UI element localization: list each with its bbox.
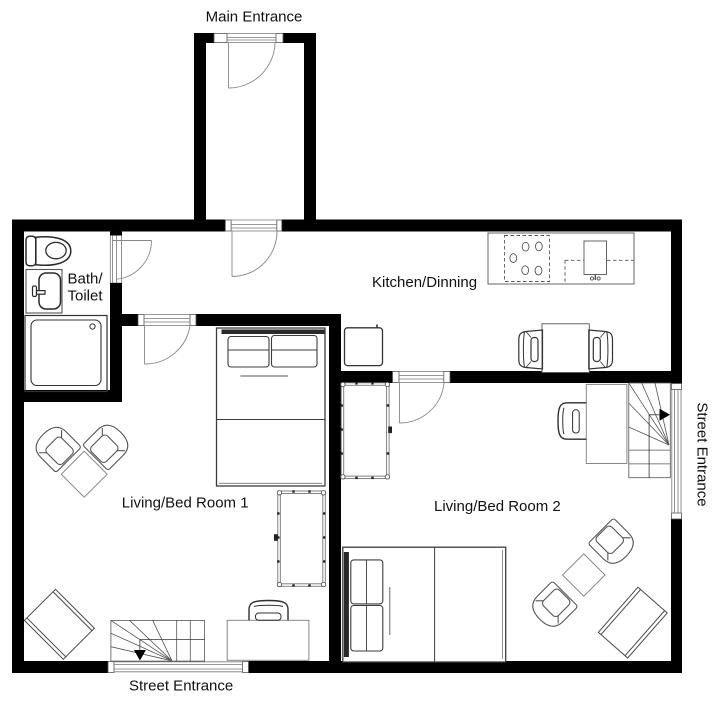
- svg-text:Street Entrance: Street Entrance: [694, 402, 711, 506]
- svg-text:Living/Bed Room 1: Living/Bed Room 1: [122, 495, 249, 512]
- svg-text:Toilet: Toilet: [68, 288, 104, 305]
- svg-text:Main Entrance: Main Entrance: [206, 9, 303, 26]
- svg-text:Living/Bed Room 2: Living/Bed Room 2: [434, 498, 561, 515]
- svg-text:Street Entrance: Street Entrance: [129, 677, 233, 694]
- svg-text:Bath/: Bath/: [68, 271, 104, 288]
- svg-text:Kitchen/Dinning: Kitchen/Dinning: [372, 274, 477, 291]
